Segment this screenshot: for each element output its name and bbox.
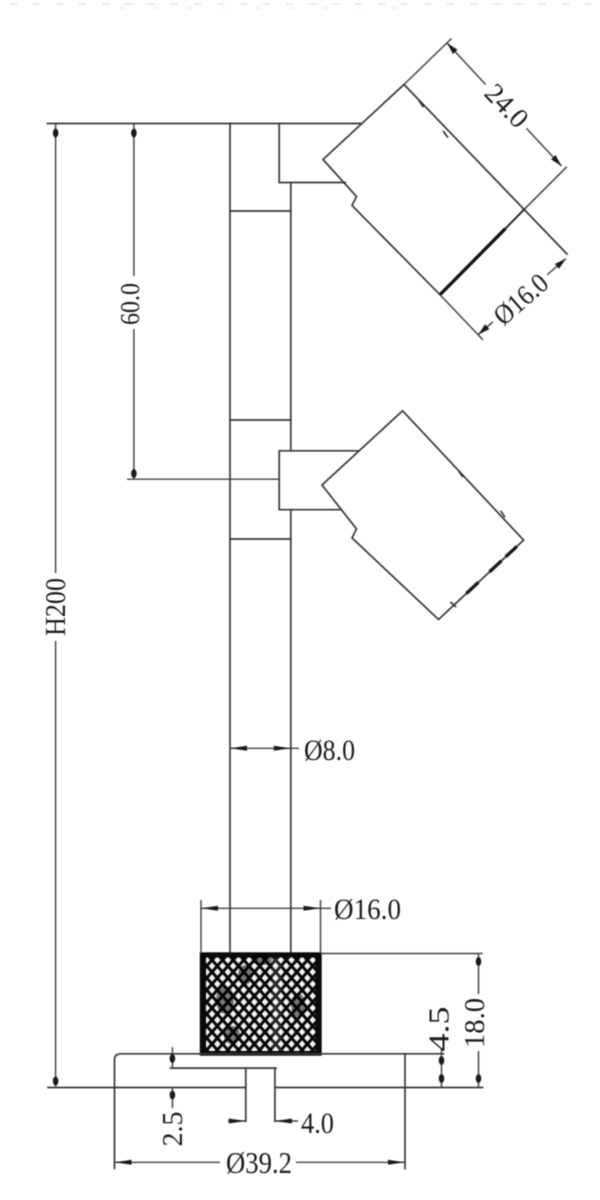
svg-text:Ø8.0: Ø8.0: [304, 734, 355, 767]
svg-text:4.0: 4.0: [301, 1107, 334, 1140]
svg-text:60.0: 60.0: [115, 283, 145, 325]
svg-text:18.0: 18.0: [459, 998, 491, 1048]
svg-text:Ø16.0: Ø16.0: [334, 893, 401, 926]
svg-text:4.5: 4.5: [424, 1007, 456, 1052]
svg-text:2.5: 2.5: [157, 1112, 189, 1147]
svg-text:Ø39.2: Ø39.2: [226, 1145, 292, 1180]
svg-text:H200: H200: [41, 578, 72, 636]
